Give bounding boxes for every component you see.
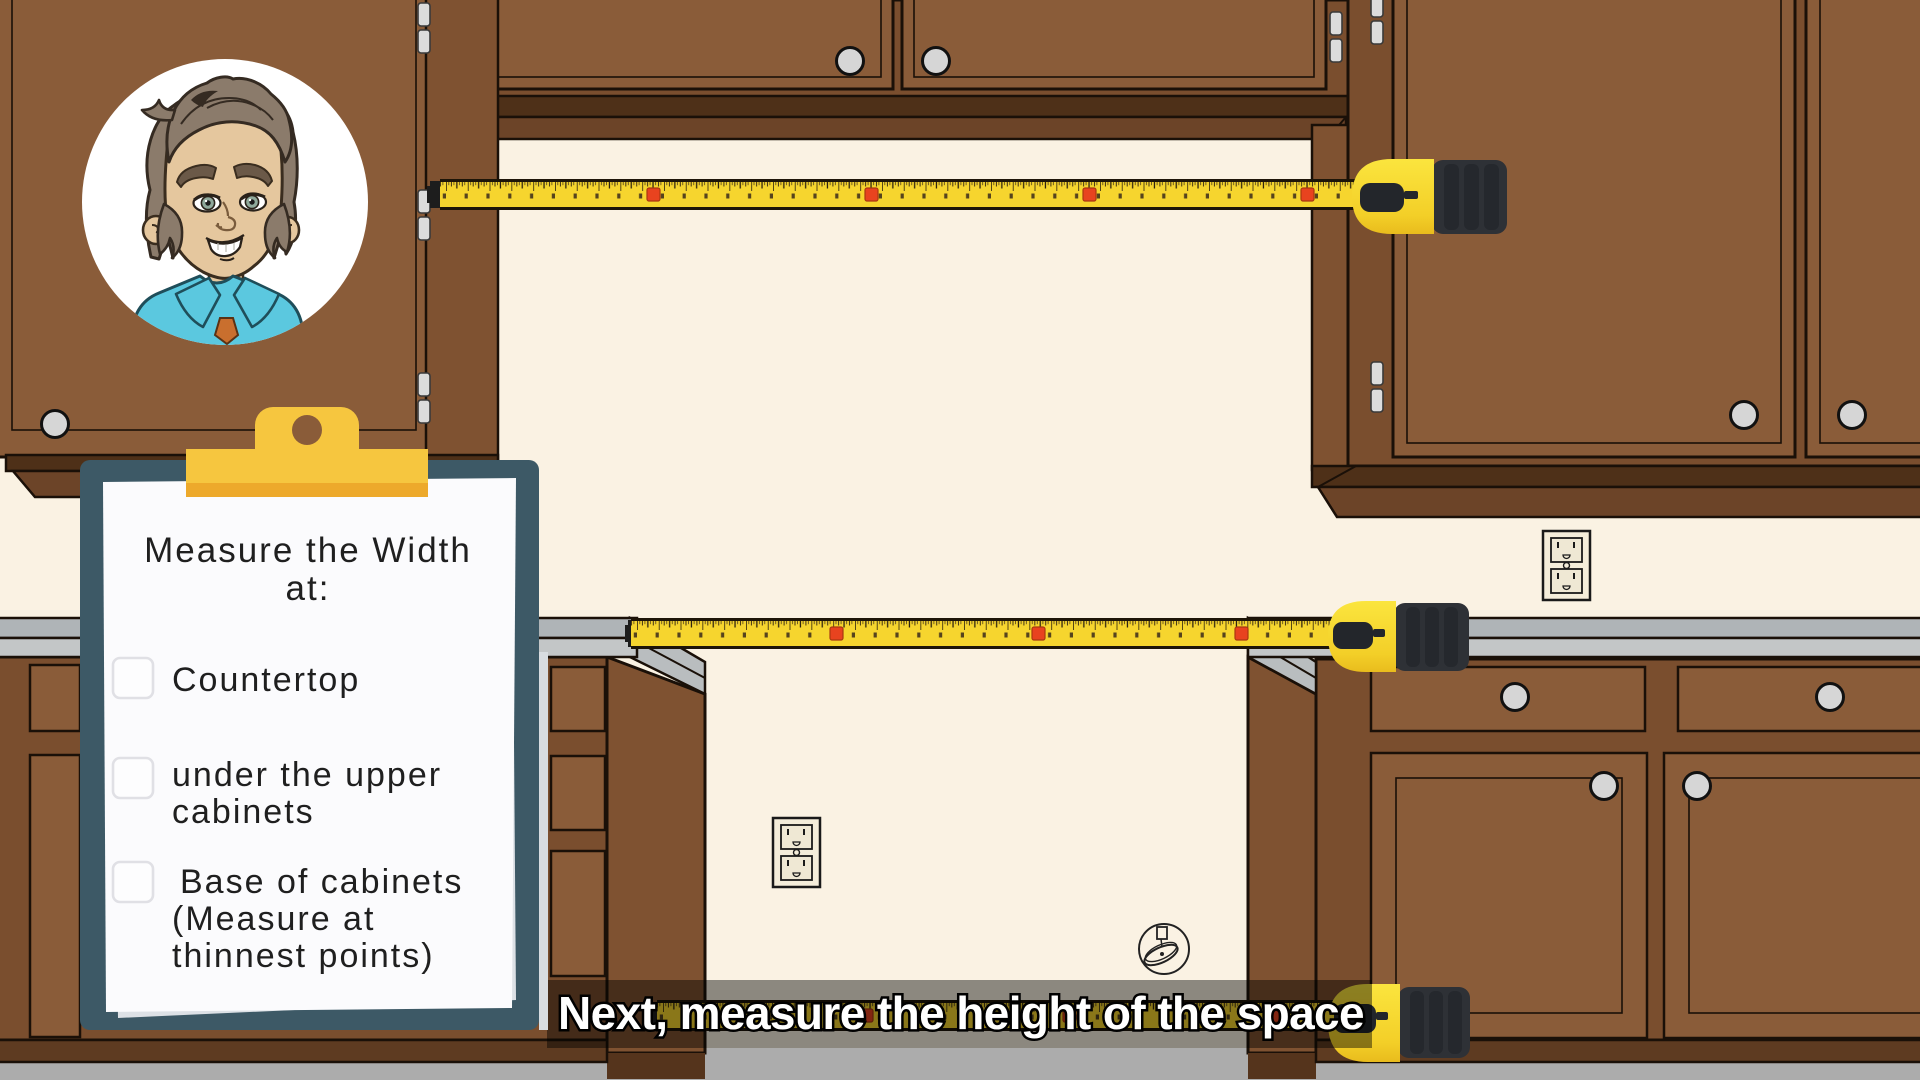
svg-text:Base of cabinets: Base of cabinets: [180, 863, 463, 901]
svg-text:thinnest points): thinnest points): [172, 937, 435, 975]
svg-text:Next, measure the height of th: Next, measure the height of the space: [558, 987, 1364, 1039]
svg-text:at:: at:: [286, 569, 331, 608]
svg-text:under the upper: under the upper: [172, 756, 442, 794]
svg-text:Measure the Width: Measure the Width: [144, 531, 472, 570]
svg-text:(Measure at: (Measure at: [172, 900, 375, 938]
svg-text:Countertop: Countertop: [172, 661, 360, 699]
svg-text:cabinets: cabinets: [172, 793, 315, 831]
